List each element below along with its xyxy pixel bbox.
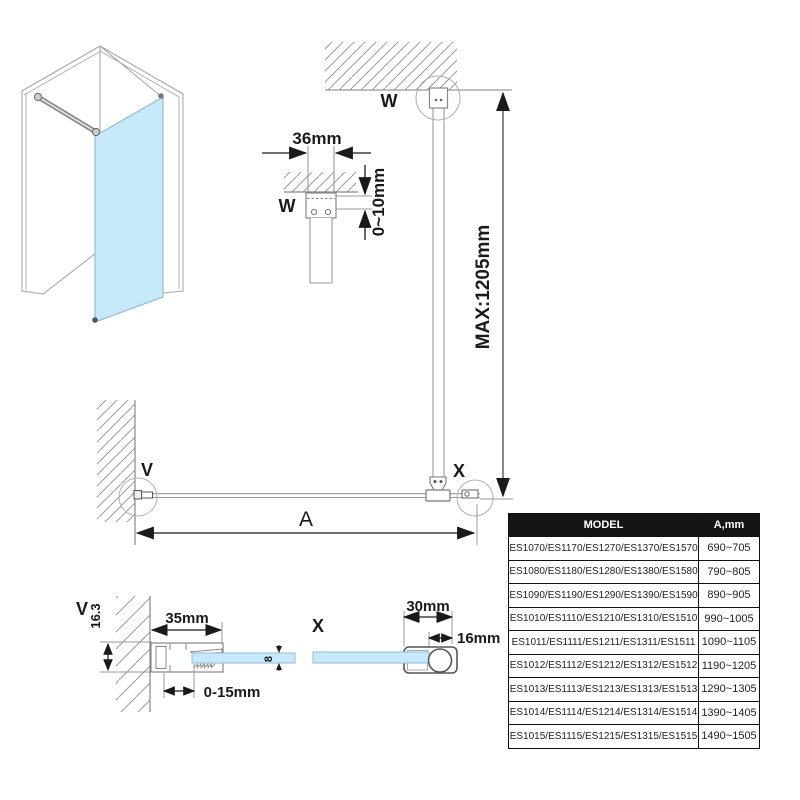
a-cell: 990~1005 <box>699 607 760 631</box>
detail-w-label: W <box>279 196 296 216</box>
dim-16mm-label: 16mm <box>457 630 500 647</box>
bracket-screw <box>311 209 316 214</box>
model-table: MODEL A,mm ES1070/ES1170/ES1270/ES1370/E… <box>508 513 759 749</box>
plan-x-label: X <box>453 461 465 481</box>
clamp-serration <box>194 664 215 668</box>
a-cell: 1390~1405 <box>699 701 760 725</box>
a-cell: 1490~1505 <box>699 725 760 749</box>
support-bar-end-section <box>429 649 452 672</box>
table-row: ES1070/ES1170/ES1270/ES1370/ES1570 690~7… <box>509 537 760 561</box>
bracket-screw <box>325 209 330 214</box>
detail-v-label: V <box>76 599 88 619</box>
glass-end-screw <box>465 492 469 496</box>
wall-hatch <box>116 596 150 712</box>
a-cell: 790~805 <box>699 560 760 584</box>
dim-0-10mm-label: 0~10mm <box>369 168 388 237</box>
table-row: ES1015/ES1115/ES1215/ES1315/ES1515 1490~… <box>509 725 760 749</box>
model-cell: ES1070/ES1170/ES1270/ES1370/ES1570 <box>509 537 699 561</box>
model-cell: ES1013/ES1113/ES1213/ES1313/ES1513 <box>509 678 699 702</box>
plan-w-label: W <box>381 91 398 111</box>
iso-glass-top-bracket <box>158 93 164 99</box>
iso-bar-glass-clamp <box>92 128 99 135</box>
dim-35mm-label: 35mm <box>165 610 208 627</box>
a-column-header: A,mm <box>699 514 760 537</box>
bar-wall-bracket <box>306 193 336 218</box>
a-cell: 690~705 <box>699 537 760 561</box>
table-row: ES1014/ES1114/ES1214/ES1314/ES1514 1390~… <box>509 701 760 725</box>
iso-bar-wall-mount <box>34 93 41 100</box>
wall-profile-fitting <box>134 491 142 500</box>
bar-glass-clamp <box>426 490 450 501</box>
model-cell: ES1014/ES1114/ES1214/ES1314/ES1514 <box>509 701 699 725</box>
a-cell: 1290~1305 <box>699 678 760 702</box>
table-header-row: MODEL A,mm <box>509 514 760 537</box>
a-cell: 890~905 <box>699 584 760 608</box>
bracket-screw <box>435 99 438 102</box>
iso-view <box>22 46 183 323</box>
glass-section <box>313 652 429 663</box>
bar-glass-hinge <box>430 477 446 490</box>
model-cell: ES1015/ES1115/ES1215/ES1315/ES1515 <box>509 725 699 749</box>
table-row: ES1012/ES1112/ES1212/ES1312/ES1512 1190~… <box>509 654 760 678</box>
dim-max-label: MAX:1205mm <box>473 225 494 350</box>
a-cell: 1190~1205 <box>699 654 760 678</box>
dim-36mm-label: 36mm <box>292 129 341 148</box>
technical-drawing-page: 36mm 0~10mm W W V <box>0 0 800 800</box>
table-row: ES1080/ES1180/ES1280/ES1380/ES1580 790~8… <box>509 560 760 584</box>
table-row: ES1010/ES1110/ES1210/ES1310/ES1510 990~1… <box>509 607 760 631</box>
model-cell: ES1090/ES1190/ES1290/ES1390/ES1590 <box>509 584 699 608</box>
plan-v-label: V <box>141 460 153 480</box>
hinge-screw <box>434 480 437 483</box>
model-cell: ES1080/ES1180/ES1280/ES1380/ES1580 <box>509 560 699 584</box>
model-column-header: MODEL <box>509 514 699 537</box>
wall-profile-fitting <box>142 492 153 498</box>
dim-16-3-label: 16.3 <box>88 603 103 628</box>
model-cell: ES1010/ES1110/ES1210/ES1310/ES1510 <box>509 607 699 631</box>
dim-8-label: 8 <box>263 656 275 662</box>
dim-0-15mm-label: 0-15mm <box>204 684 261 701</box>
dim-a-label: A <box>299 508 313 531</box>
support-bar-section <box>310 218 332 283</box>
iso-glass-panel <box>95 97 163 322</box>
iso-glass-floor-anchor <box>92 317 98 323</box>
model-cell: ES1012/ES1112/ES1212/ES1312/ES1512 <box>509 654 699 678</box>
bar-ceiling-bracket <box>430 88 448 108</box>
detail-w: 36mm 0~10mm W <box>262 129 388 283</box>
bracket-screw <box>440 99 443 102</box>
dim-30mm-label: 30mm <box>406 598 449 615</box>
left-wall-hatch <box>97 400 135 522</box>
model-cell: ES1011/ES1111/ES1211/ES1311/ES1511 <box>509 631 699 655</box>
detail-x-label: X <box>312 616 324 636</box>
top-wall-hatch <box>325 42 457 90</box>
table-row: ES1090/ES1190/ES1290/ES1390/ES1590 890~9… <box>509 584 760 608</box>
table-row: ES1013/ES1113/ES1213/ES1313/ES1513 1290~… <box>509 678 760 702</box>
detail-v: V 16.3 35mm 8 0-15mm <box>76 596 295 712</box>
iso-left-wall <box>22 46 100 294</box>
detail-x: X 30mm 16mm <box>312 598 500 673</box>
wall-hatch <box>284 172 356 192</box>
a-cell: 1090~1105 <box>699 631 760 655</box>
table-row: ES1011/ES1111/ES1211/ES1311/ES1511 1090~… <box>509 631 760 655</box>
glass-section <box>192 653 295 663</box>
hinge-screw <box>440 480 443 483</box>
